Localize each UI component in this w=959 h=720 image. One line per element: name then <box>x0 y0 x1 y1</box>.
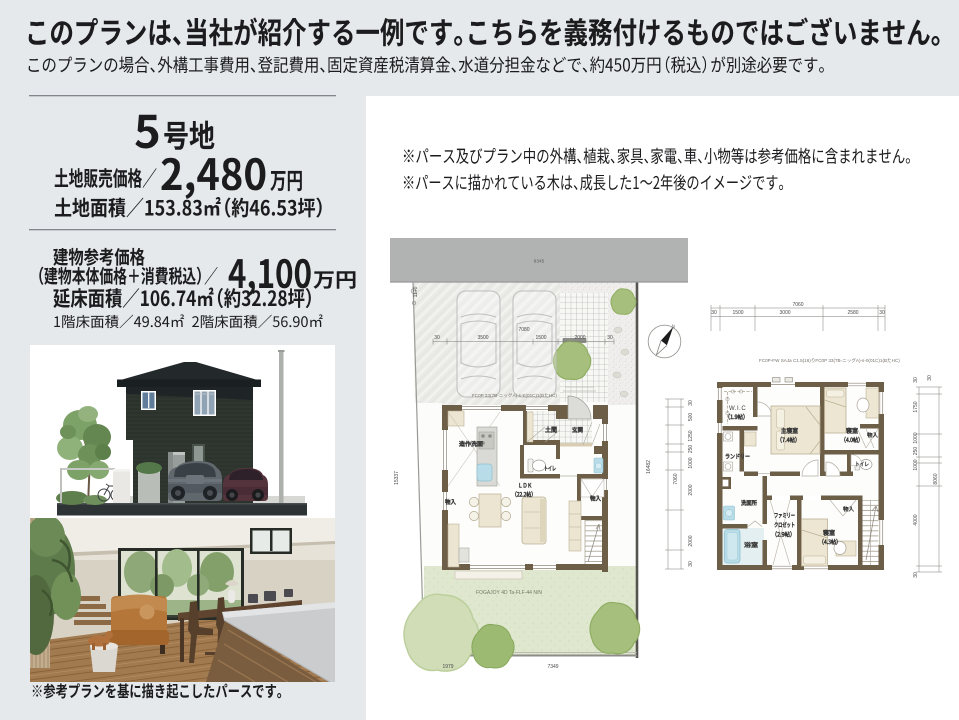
svg-text:1979: 1979 <box>442 664 453 670</box>
svg-text:7349: 7349 <box>547 664 558 670</box>
svg-text:3000: 3000 <box>779 310 790 316</box>
svg-text:N: N <box>672 325 676 331</box>
svg-text:9345: 9345 <box>534 259 545 265</box>
svg-text:30: 30 <box>688 400 694 406</box>
svg-text:7060: 7060 <box>792 302 803 308</box>
svg-text:FC0P 33(7B-ニッグA)-s-E(01C)1(Bた: FC0P 33(7B-ニッグA)-s-E(01C)1(BたHC) <box>472 392 557 399</box>
svg-text:30: 30 <box>879 310 885 316</box>
svg-text:3500: 3500 <box>477 335 488 341</box>
svg-text:W.I.C: W.I.C <box>729 406 746 412</box>
svg-text:30: 30 <box>913 572 919 578</box>
svg-text:2580: 2580 <box>847 310 858 316</box>
svg-text:500: 500 <box>688 413 694 422</box>
svg-text:7060: 7060 <box>673 473 679 484</box>
svg-text:7080: 7080 <box>518 327 529 333</box>
svg-text:2000: 2000 <box>574 335 585 341</box>
svg-text:1750: 1750 <box>913 401 919 412</box>
svg-text:4000: 4000 <box>913 514 919 525</box>
svg-text:16482: 16482 <box>646 460 652 474</box>
svg-text:30: 30 <box>913 377 919 383</box>
svg-text:30: 30 <box>927 375 933 381</box>
svg-text:30: 30 <box>607 335 613 341</box>
svg-text:30: 30 <box>711 310 717 316</box>
svg-text:1250: 1250 <box>688 430 694 441</box>
svg-text:1500: 1500 <box>732 310 743 316</box>
svg-text:1170: 1170 <box>413 286 419 297</box>
svg-text:FC0P-FW SAJa C1.5(16)りFC0P 33(: FC0P-FW SAJa C1.5(16)りFC0P 33(7B-ニッグA)-… <box>759 357 900 364</box>
svg-text:1000: 1000 <box>688 457 694 468</box>
svg-text:8060: 8060 <box>933 473 939 484</box>
svg-text:2000: 2000 <box>688 484 694 495</box>
svg-text:1500: 1500 <box>535 335 546 341</box>
svg-text:2000: 2000 <box>688 535 694 546</box>
svg-text:30: 30 <box>434 335 440 341</box>
svg-text:1000: 1000 <box>913 459 919 470</box>
svg-text:250: 250 <box>913 447 919 456</box>
svg-text:30: 30 <box>688 561 694 567</box>
svg-text:250: 250 <box>688 445 694 454</box>
svg-text:1000: 1000 <box>913 432 919 443</box>
svg-text:FOGAJOY 4D Ta-FLF-44 N/N: FOGAJOY 4D Ta-FLF-44 N/N <box>476 590 542 596</box>
svg-text:15337: 15337 <box>394 471 400 485</box>
